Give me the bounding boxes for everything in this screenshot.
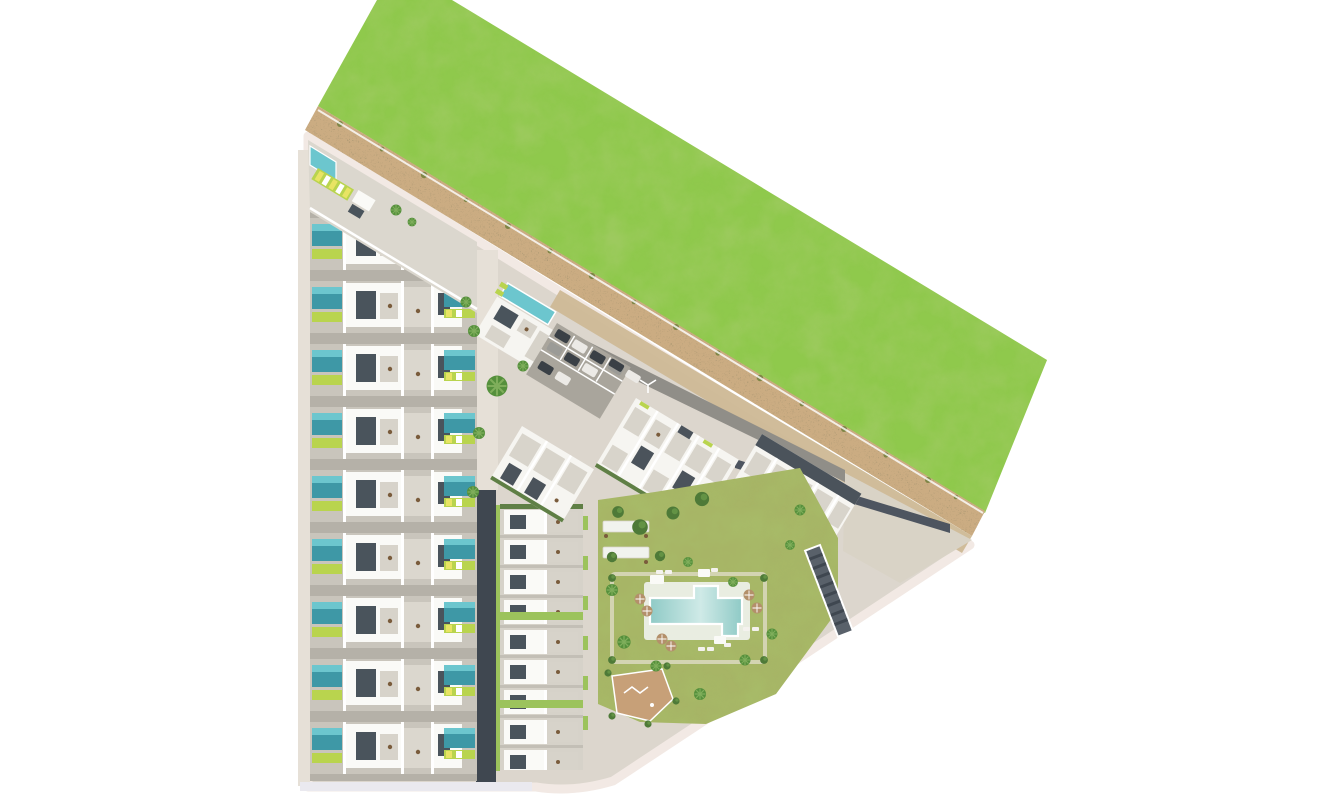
west-edge-strip <box>298 150 310 786</box>
terraced-houses-west <box>307 140 477 781</box>
siteplan-render <box>0 0 1320 800</box>
road-hedge <box>496 505 500 771</box>
terraced-houses-south <box>500 504 588 770</box>
south-access-road <box>476 488 496 782</box>
west-corridor <box>476 250 498 490</box>
siteplan-canvas <box>0 0 1320 800</box>
south-road-strip <box>300 782 532 791</box>
